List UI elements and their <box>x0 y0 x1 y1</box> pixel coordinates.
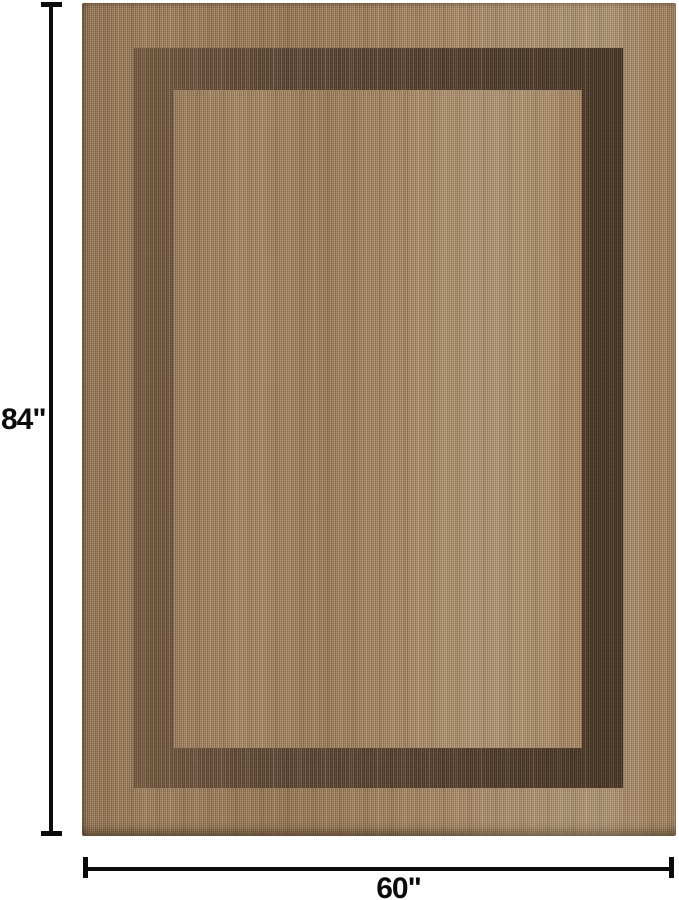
height-dimension-bottom-cap <box>41 831 62 836</box>
width-dimension-label: 60" <box>85 874 672 900</box>
height-dimension-top-cap <box>41 2 62 7</box>
rug-inner-field <box>174 90 582 748</box>
height-dimension-label: 84" <box>1 405 46 435</box>
product-image: 84" 60" <box>0 0 679 900</box>
height-dimension-line <box>49 4 53 833</box>
rug-photo <box>82 3 676 836</box>
width-dimension-line <box>85 867 672 871</box>
rug-inner-field-shading <box>174 90 582 748</box>
